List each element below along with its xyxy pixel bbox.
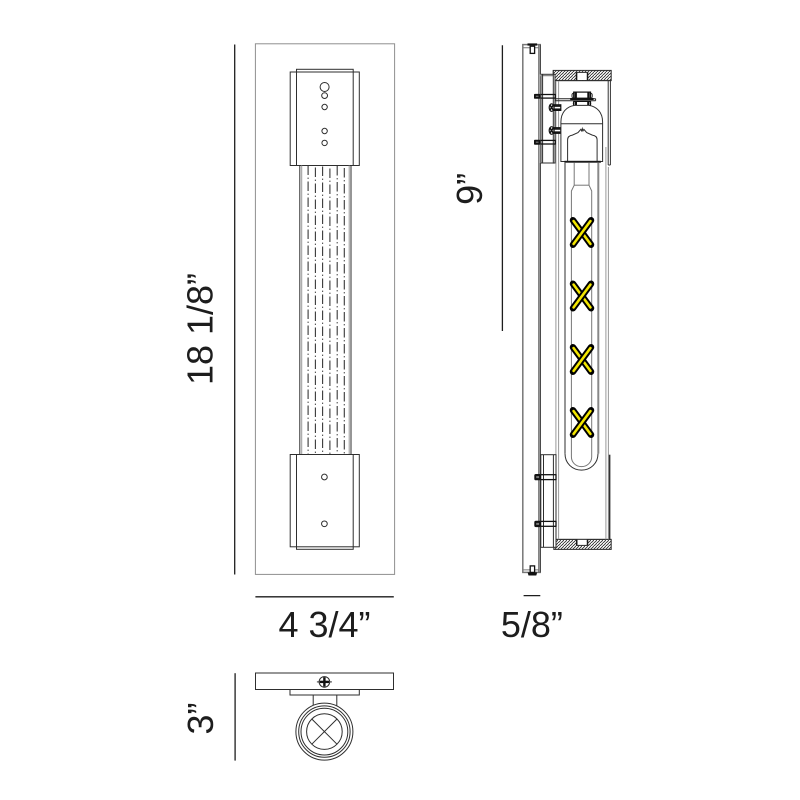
svg-text:3”: 3” xyxy=(180,702,221,734)
svg-text:18 1/8”: 18 1/8” xyxy=(180,273,221,385)
svg-text:9”: 9” xyxy=(449,173,490,205)
svg-text:5/8”: 5/8” xyxy=(501,604,563,645)
svg-text:4 3/4”: 4 3/4” xyxy=(278,604,370,645)
